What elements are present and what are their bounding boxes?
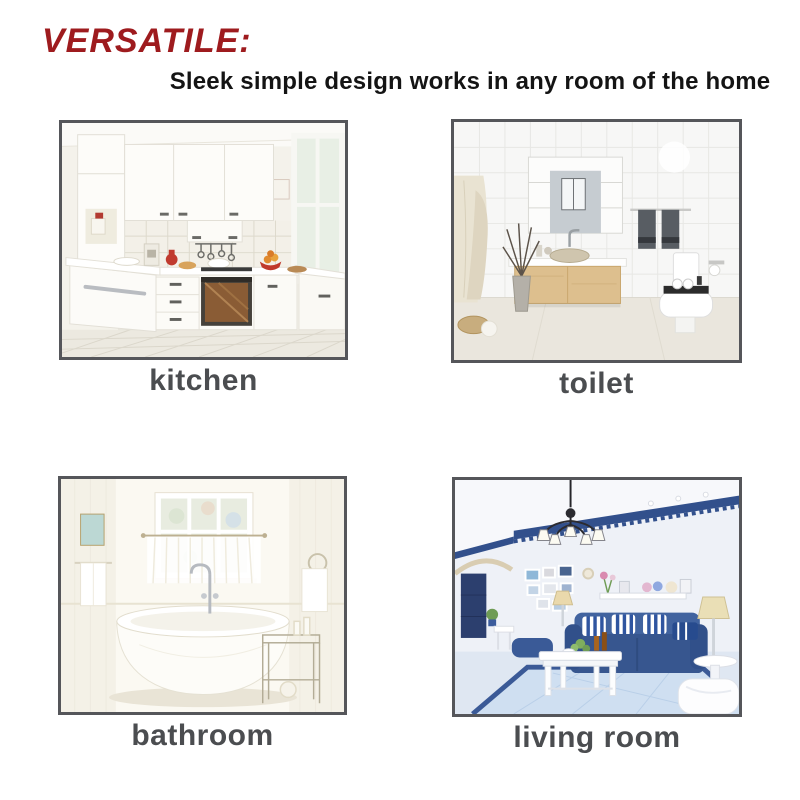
bathroom-photo: [58, 476, 347, 715]
kitchen-right-counter: [295, 265, 345, 329]
ceiling-light-glow: [659, 142, 690, 173]
framed-picture: [81, 514, 105, 545]
room-card-kitchen: kitchen: [59, 120, 348, 398]
toilet-photo: [451, 119, 742, 363]
page-title: VERSATILE:: [42, 22, 252, 61]
kitchen-floor: [62, 330, 345, 357]
room-label-bathroom: bathroom: [58, 719, 347, 753]
mirror-cabinet: [528, 157, 622, 233]
room-card-living-room: living room: [452, 477, 742, 755]
page-subtitle: Sleek simple design works in any room of…: [140, 68, 800, 96]
oven: [201, 277, 252, 326]
wall-art: [274, 180, 290, 200]
room-card-toilet: toilet: [451, 119, 742, 401]
white-ottoman: [678, 679, 739, 714]
bathroom-illustration: [61, 479, 344, 712]
kitchen-front-cabinet: [66, 258, 160, 332]
living-room-illustration: [455, 480, 739, 714]
living-room-photo: [452, 477, 742, 717]
room-card-bathroom: bathroom: [58, 476, 347, 753]
towel-bar-left: [75, 563, 112, 606]
cafe-curtain: [141, 533, 267, 583]
room-label-kitchen: kitchen: [59, 364, 348, 398]
kitchen-window: [291, 133, 345, 284]
room-label-toilet: toilet: [451, 367, 742, 401]
toilet-illustration: [454, 122, 739, 360]
room-label-living-room: living room: [452, 721, 742, 755]
kitchen-photo: [59, 120, 348, 360]
kitchen-illustration: [62, 123, 345, 357]
hanging-robe: [454, 176, 488, 303]
